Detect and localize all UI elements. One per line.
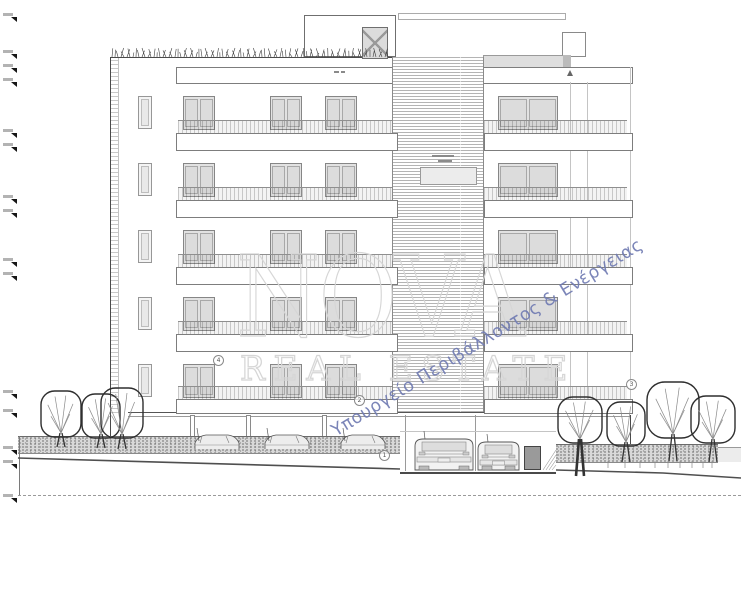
keynote-circle: 3 [626,379,637,390]
balcony-railing [484,254,627,268]
elevation-marker-arrow [11,276,17,281]
roof-hatch-door [362,27,388,59]
elevation-marker-label [3,195,13,198]
elevation-drawing: NOVA REAL ESTATE Υπουργείο Περιβάλλοντος… [0,0,741,600]
elevation-marker-arrow [11,68,17,73]
parked-car [415,431,473,470]
narrow-window [138,364,152,397]
ramp-hatch-line [549,460,556,470]
balcony-slab [484,200,633,218]
parked-car [478,434,519,470]
balcony-slab [176,200,398,218]
elevation-marker-label [3,272,13,275]
balcony-railing [484,120,627,134]
elevation-marker-label [3,494,13,497]
garage-wall-line [475,415,476,471]
balcony-railing [178,321,392,335]
left-insulation-strip [111,57,119,413]
keynote-circle: 2 [354,395,365,406]
louver-seam [460,57,461,413]
ramp-hatch-line [552,465,556,470]
ground-hatch-right-ext [718,447,741,462]
elevation-marker-label [3,390,13,393]
elevation-marker-arrow [11,450,17,455]
ramp-hatch-line [546,455,556,470]
utility-box [524,446,541,470]
balcony-slab [484,399,633,414]
elevation-marker-label [3,129,13,132]
elevation-marker-label [3,64,13,67]
elevation-marker-arrow [11,17,17,22]
elevation-marker-label [3,409,13,412]
elevation-marker-arrow [11,133,17,138]
basement-dashed-line [18,495,741,496]
pilotis-column [322,415,327,437]
micro-annotation [334,71,339,73]
garage-wall-line [405,415,406,471]
elevation-marker-label [3,446,13,449]
elevation-marker-label [3,13,13,16]
level-leader-arrow [567,70,573,76]
narrow-window [138,163,152,196]
balcony-slab [484,133,633,151]
balcony-railing [484,386,627,400]
keynote-circle: 4 [213,355,224,366]
central-louver-shaft [392,57,484,413]
micro-annotation [438,160,452,162]
right-wall-edge [630,67,631,415]
balcony-railing [178,120,392,134]
balcony-slab [484,334,633,352]
balcony-railing [484,187,627,201]
balcony-slab [176,267,398,285]
micro-annotation [341,71,345,73]
garage-floor-line [400,472,556,474]
narrow-window [138,297,152,330]
elevation-marker-label [3,209,13,212]
roof-chimney-box [562,32,586,57]
narrow-window [138,96,152,129]
shaft-entrance-panel [420,167,477,185]
ground-hatch-left [18,436,400,454]
balcony-railing [484,321,627,335]
elevation-marker-label [3,50,13,53]
micro-annotation [432,155,454,157]
ground-line-left [18,458,400,469]
roof-pergola-bar [398,13,566,20]
ramp-hatch-line [543,450,556,470]
garage-backwall-line [400,431,556,432]
keynote-circle: 1 [379,450,390,461]
elevation-marker-arrow [11,147,17,152]
site-left-edge [19,436,20,496]
balcony-slab [176,334,398,352]
elevation-marker-label [3,78,13,81]
elevation-marker-arrow [11,498,17,503]
elevation-marker-arrow [11,54,17,59]
elevation-marker-label [3,460,13,463]
balcony-slab [484,267,633,285]
balcony-railing [178,187,392,201]
elevation-marker-arrow [11,394,17,399]
elevation-marker-arrow [11,413,17,418]
elevation-marker-label [3,258,13,261]
pilotis-column [190,415,195,437]
ground-hatch-right [556,444,718,463]
elevation-marker-arrow [11,199,17,204]
elevation-marker-arrow [11,262,17,267]
balcony-slab [176,133,398,151]
narrow-window [138,230,152,263]
elevation-marker-arrow [11,82,17,87]
ground-line-right [556,470,741,478]
pilotis-column [246,415,251,437]
elevation-marker-label [3,143,13,146]
balcony-railing [178,254,392,268]
right-wall-lower-edge [630,415,631,444]
elevation-marker-arrow [11,213,17,218]
elevation-marker-arrow [11,464,17,469]
